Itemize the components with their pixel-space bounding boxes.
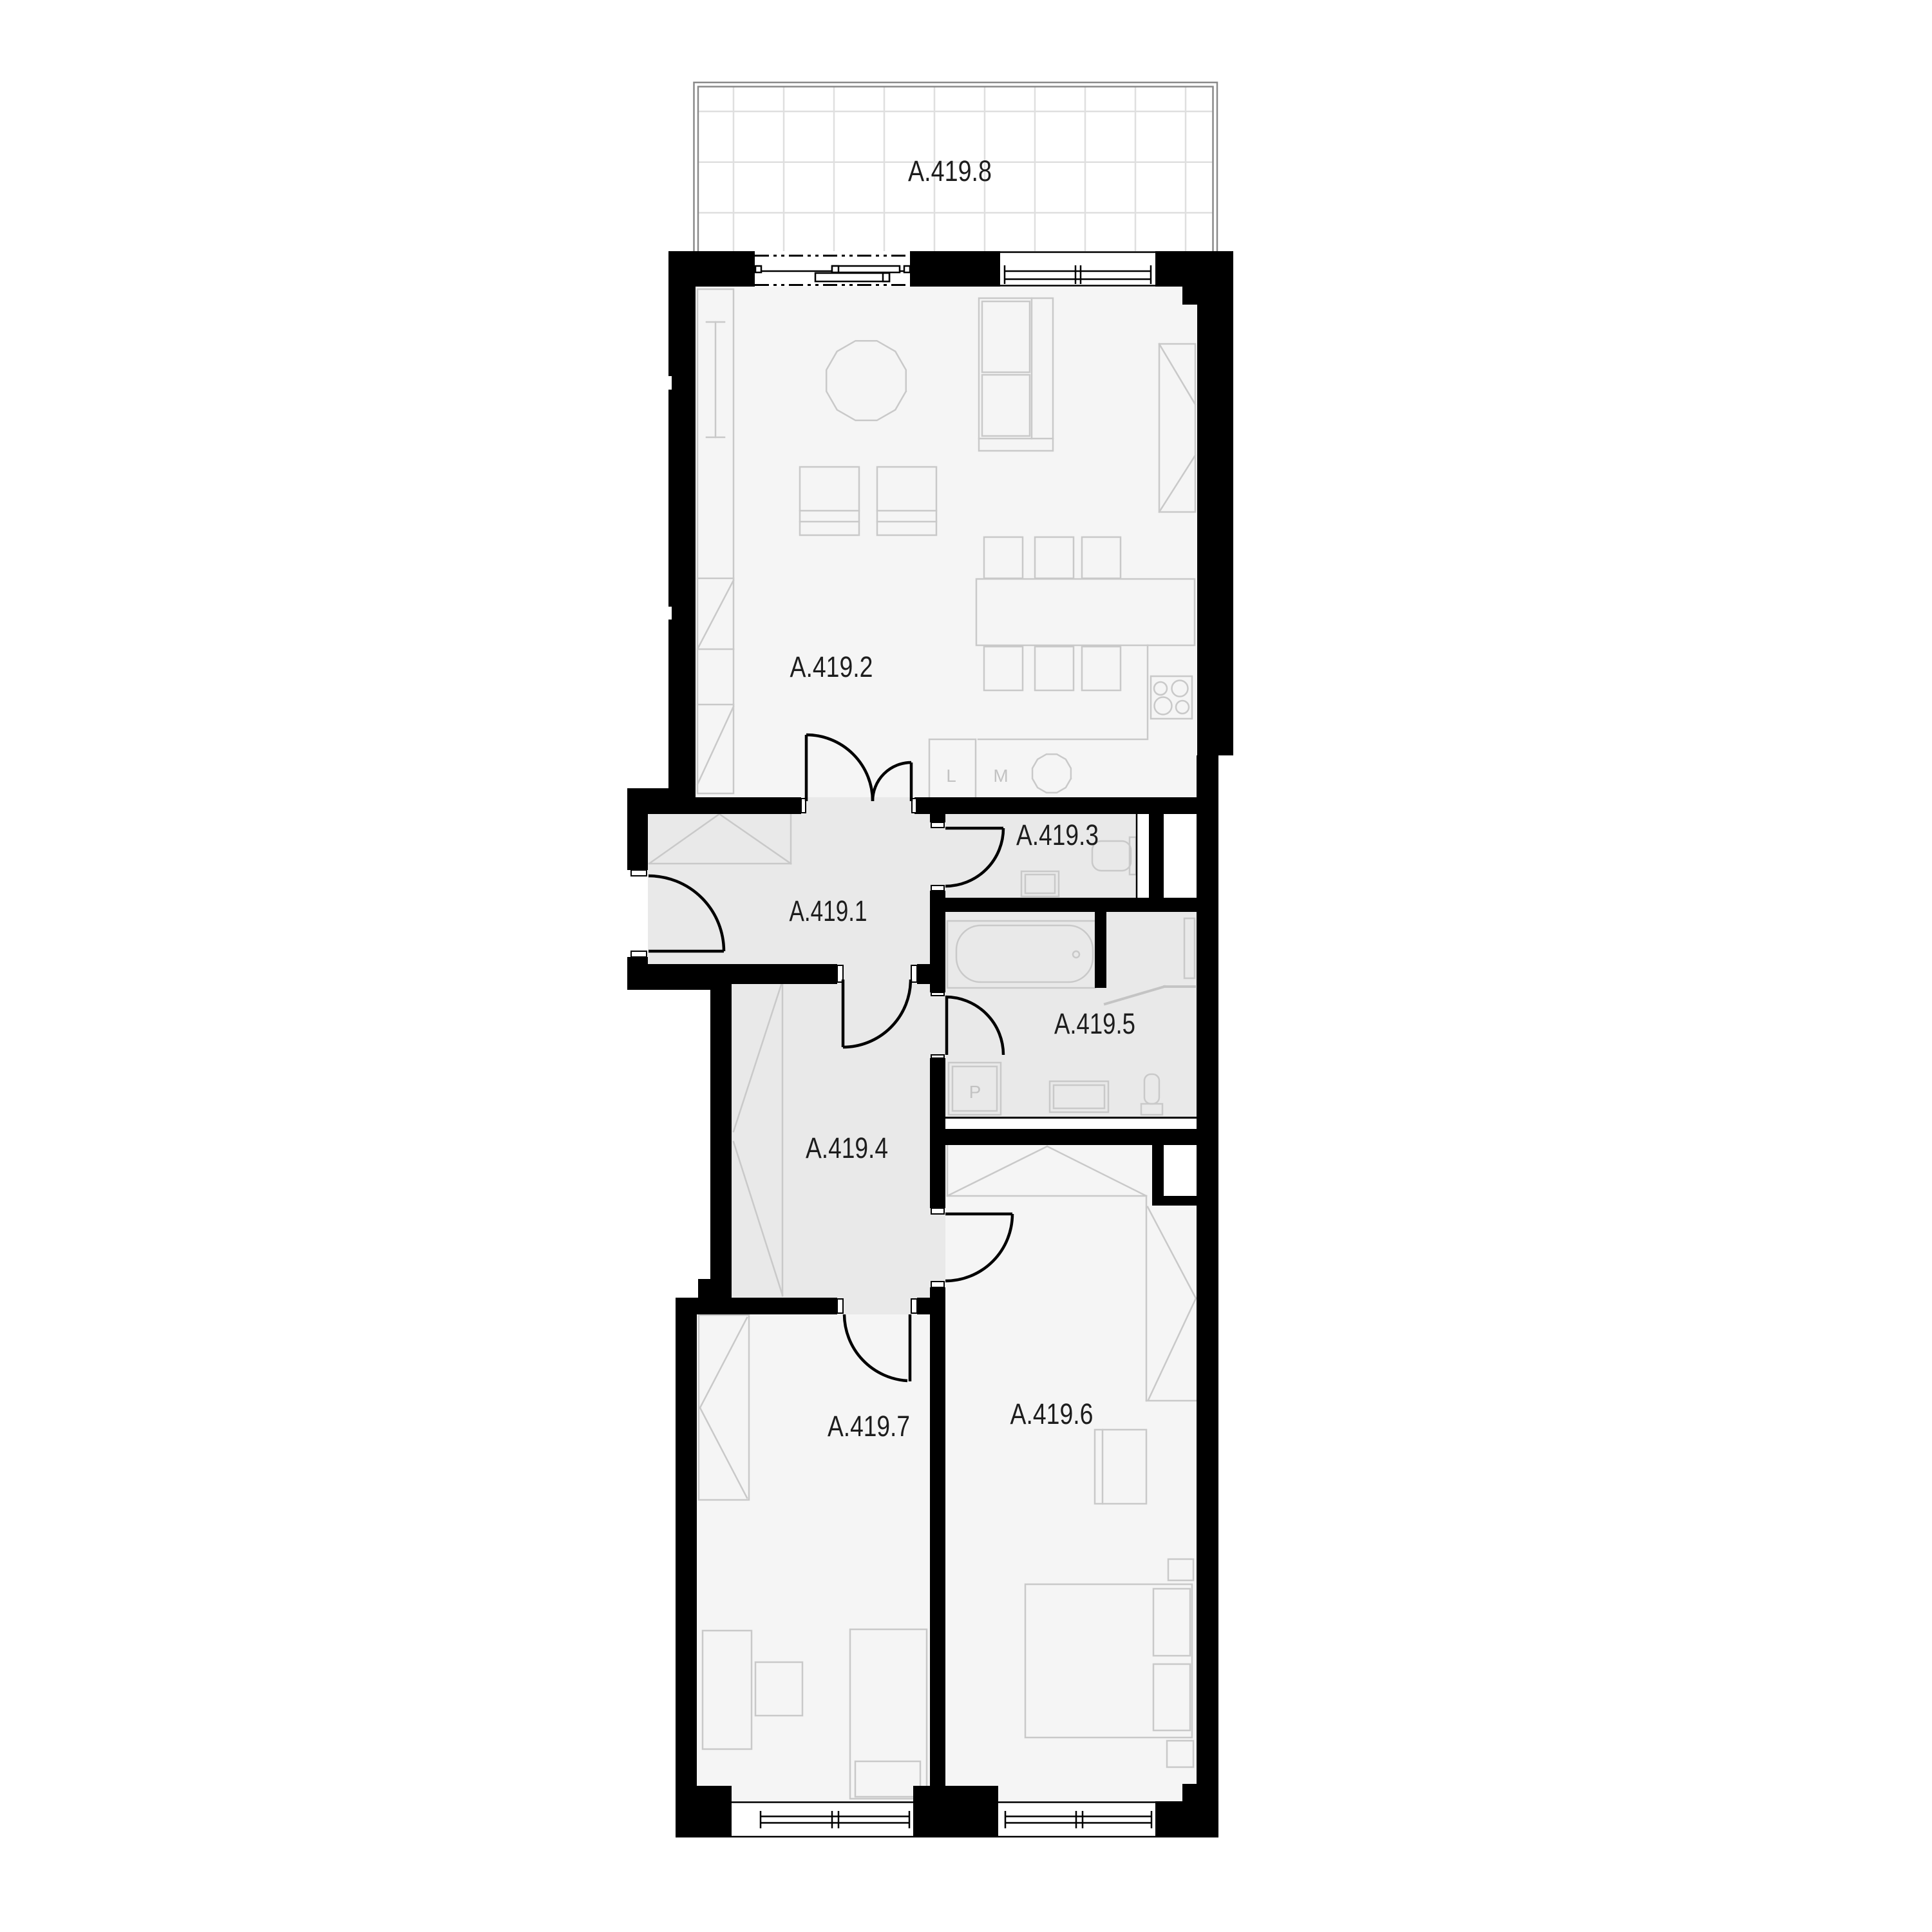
svg-text:A.419.8: A.419.8 (908, 155, 992, 187)
svg-text:A.419.7: A.419.7 (828, 1410, 910, 1443)
svg-text:A.419.1: A.419.1 (790, 895, 867, 927)
svg-text:L: L (946, 766, 956, 786)
svg-text:A.419.4: A.419.4 (806, 1132, 888, 1164)
svg-text:A.419.2: A.419.2 (790, 650, 873, 683)
svg-text:A.419.3: A.419.3 (1016, 819, 1099, 851)
svg-text:M: M (993, 766, 1008, 786)
svg-text:A.419.6: A.419.6 (1010, 1397, 1094, 1430)
svg-text:A.419.5: A.419.5 (1054, 1007, 1135, 1040)
svg-text:P: P (969, 1082, 981, 1102)
